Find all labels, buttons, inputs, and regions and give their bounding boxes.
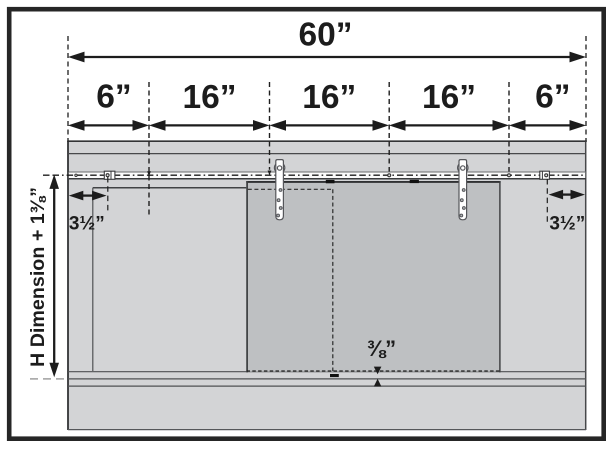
- svg-text:16”: 16”: [422, 79, 476, 116]
- svg-text:16”: 16”: [302, 79, 356, 116]
- svg-text:16”: 16”: [182, 79, 236, 116]
- svg-text:H Dimension + 1⅜”: H Dimension + 1⅜”: [27, 187, 49, 367]
- svg-text:3½”: 3½”: [549, 214, 585, 235]
- svg-text:60”: 60”: [298, 17, 352, 54]
- svg-text:3½”: 3½”: [69, 214, 105, 235]
- svg-text:⅜”: ⅜”: [367, 336, 396, 361]
- svg-text:6”: 6”: [535, 79, 570, 116]
- svg-text:6”: 6”: [96, 79, 131, 116]
